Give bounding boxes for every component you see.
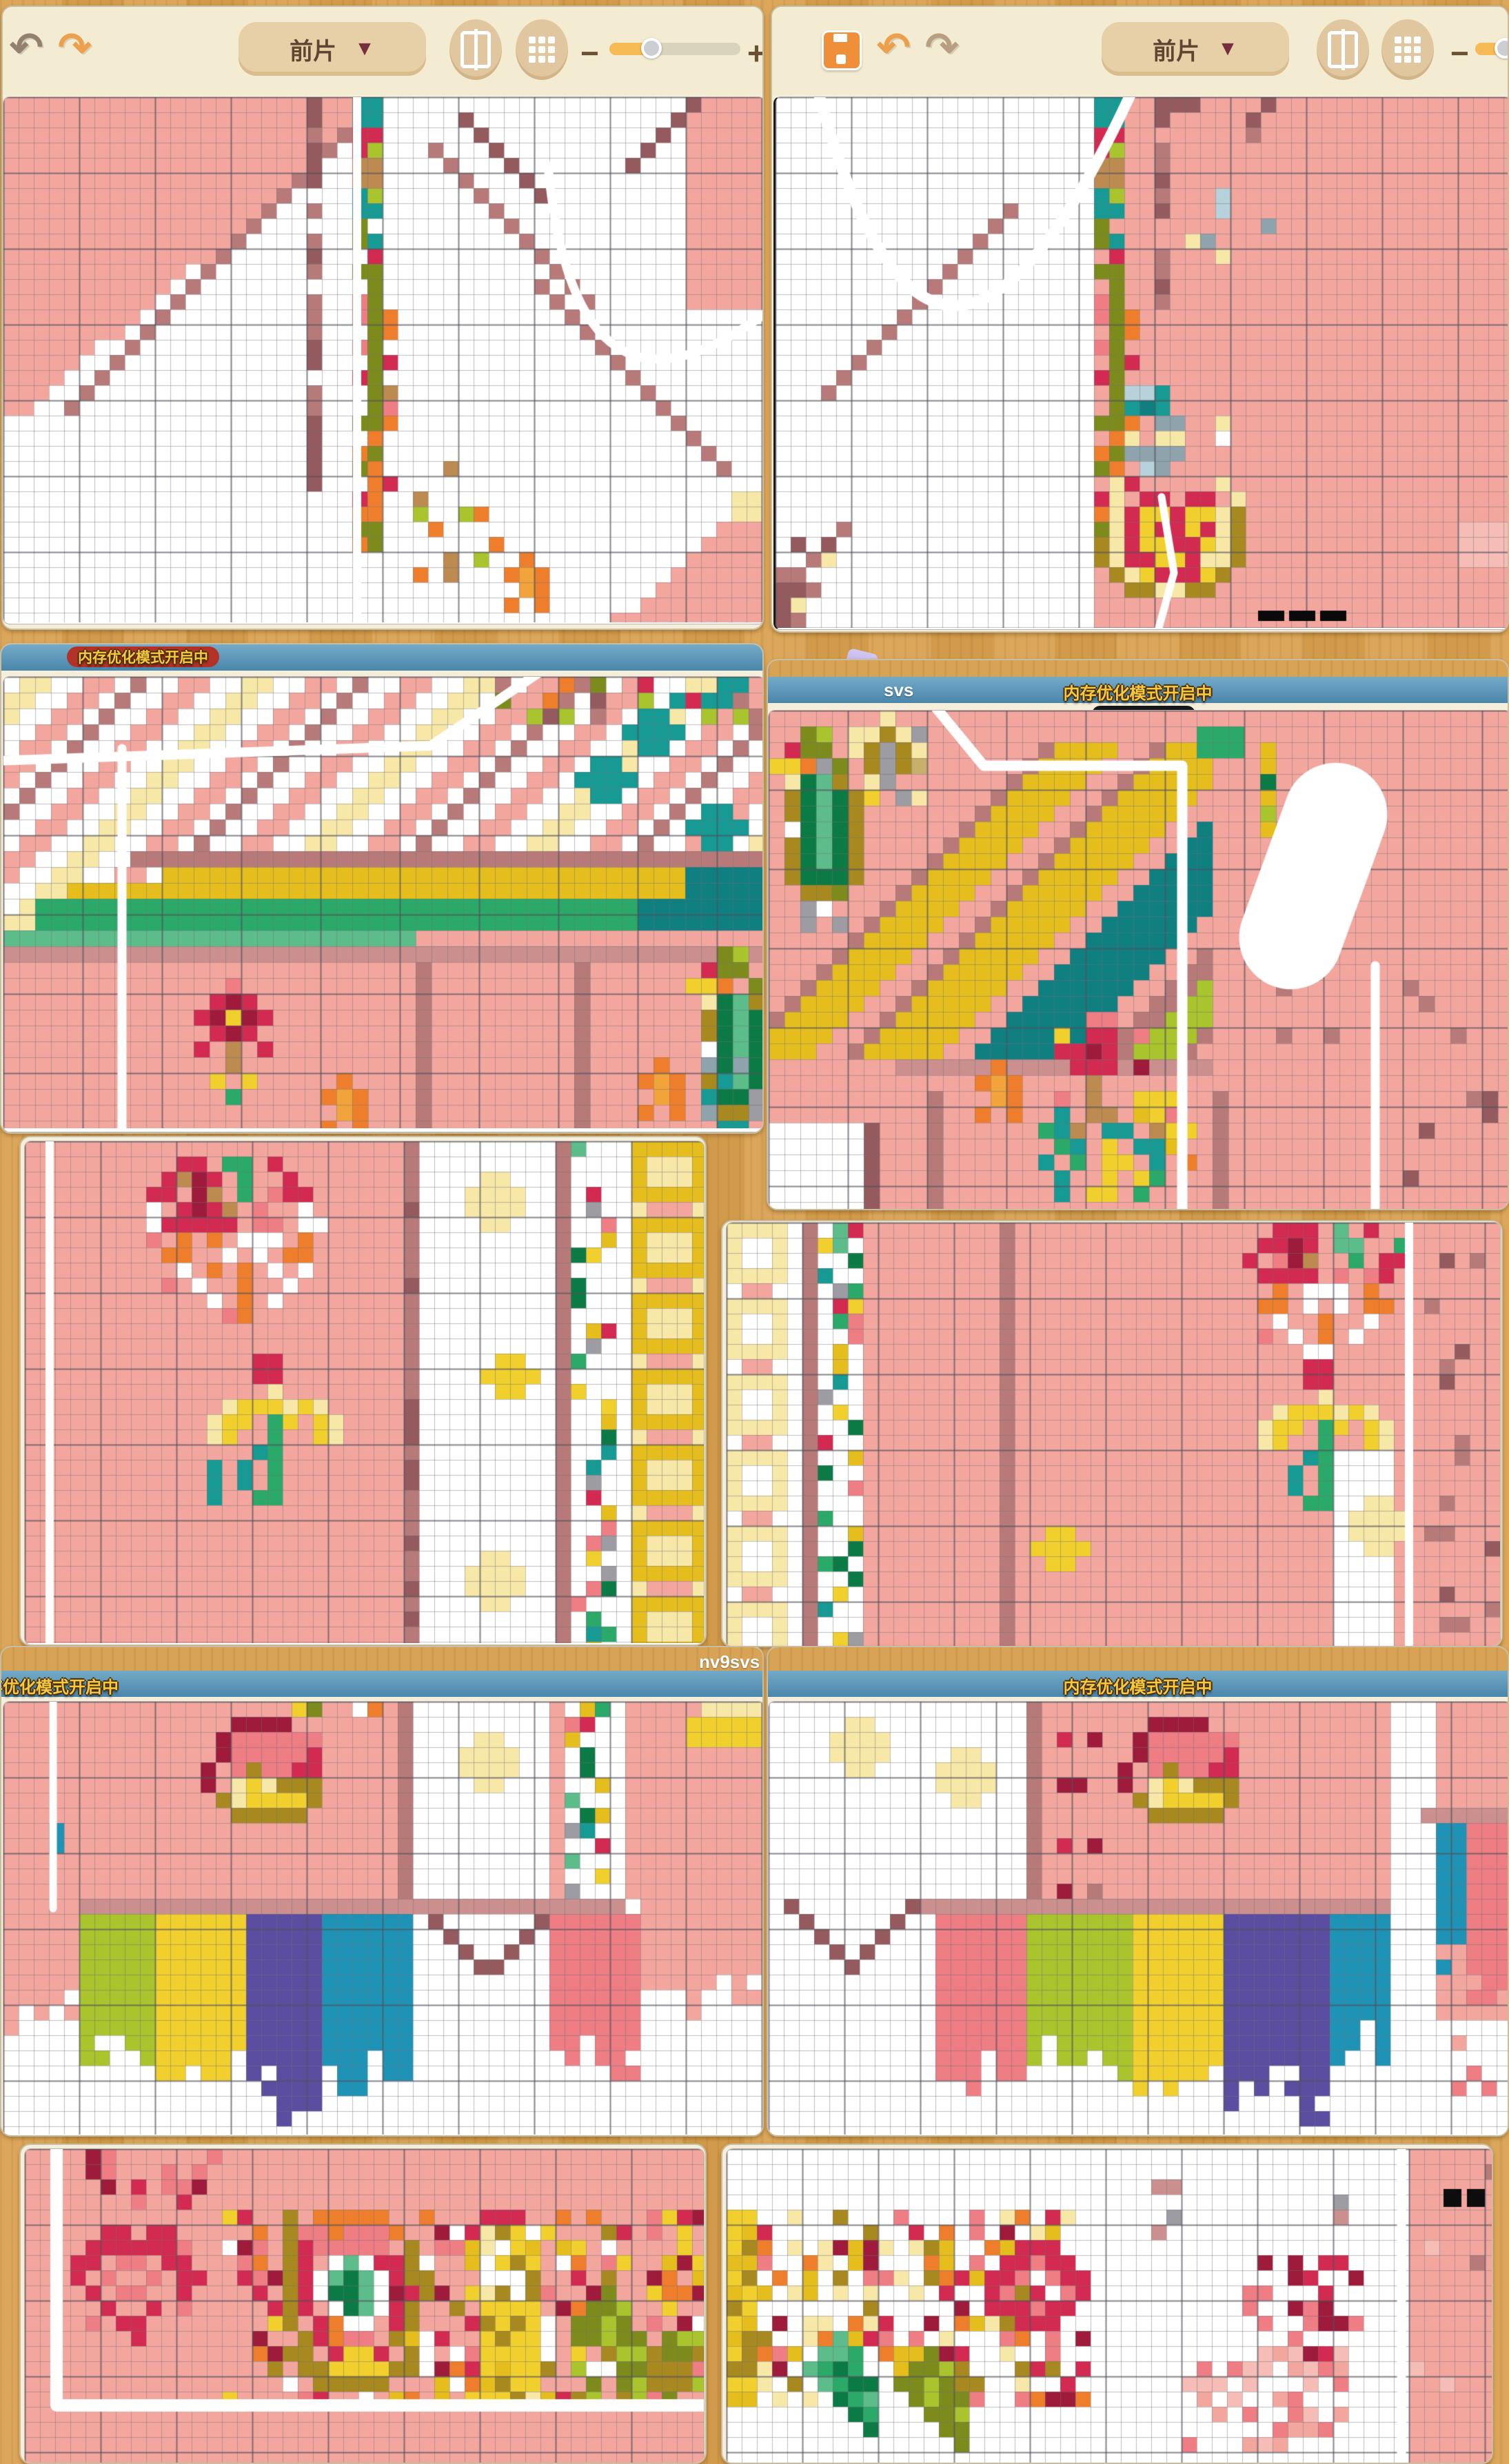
zoom-out-button[interactable]: −	[580, 34, 599, 72]
symmetry-icon	[460, 31, 491, 68]
piece-selector[interactable]: 前片 ▼	[239, 22, 426, 76]
pattern-grid-canvas[interactable]	[25, 2149, 704, 2463]
chevron-down-icon: ▼	[354, 37, 375, 61]
chart-grid-frame	[3, 1701, 764, 2137]
pattern-editor-window-row5-left	[19, 2144, 707, 2464]
zoom-slider-thumb[interactable]	[1495, 38, 1509, 59]
pattern-grid-canvas[interactable]	[769, 1702, 1509, 2135]
pattern-editor-window-row4-left: 内存优化模式开启中	[0, 1646, 764, 2137]
redo-icon[interactable]: ↷	[58, 28, 92, 68]
chart-grid-frame	[768, 1701, 1509, 2137]
watermark-text: nv9svs	[699, 1651, 760, 1673]
status-bar: svs 内存优化模式开启中	[768, 677, 1508, 703]
symmetry-button[interactable]	[449, 19, 502, 80]
status-bar: 内存优化模式开启中	[768, 1671, 1508, 1697]
status-bar: 内存优化模式开启中	[1, 644, 762, 671]
pattern-editor-window-mid-left: 内存优化模式开启中	[0, 643, 764, 1134]
grid-toggle-button[interactable]	[1381, 19, 1434, 80]
piece-selector-label: 前片	[1153, 32, 1199, 66]
symmetry-icon	[1328, 31, 1358, 68]
toolbar: ↶ ↷ 前片 ▼ −	[772, 7, 1508, 95]
zoom-in-button[interactable]: +	[747, 34, 764, 72]
wood-strip	[1, 1647, 762, 1671]
pattern-grid-canvas[interactable]	[3, 1702, 764, 2135]
chart-grid-frame	[726, 1222, 1501, 1647]
grid-toggle-button[interactable]	[516, 19, 568, 80]
save-icon	[833, 34, 847, 42]
pattern-editor-window-row3-left	[19, 1136, 707, 1646]
pattern-editor-window-row3-right	[721, 1220, 1503, 1647]
zoom-slider[interactable]	[1475, 43, 1509, 55]
memory-mode-text: 内存优化模式开启中	[78, 646, 208, 667]
zoom-out-button[interactable]: −	[1450, 34, 1469, 72]
pattern-grid-canvas[interactable]	[769, 711, 1509, 1210]
redo-icon[interactable]: ↷	[925, 28, 959, 68]
save-button[interactable]	[822, 30, 862, 70]
chart-grid-frame	[24, 2148, 705, 2464]
memory-mode-text: 内存优化模式开启中	[0, 1673, 119, 1698]
chart-grid-frame	[24, 1141, 705, 1645]
chart-grid-frame	[3, 96, 764, 624]
zoom-slider[interactable]	[609, 43, 740, 55]
piece-selector[interactable]: 前片 ▼	[1102, 22, 1289, 76]
memory-mode-badge: 内存优化模式开启中	[67, 646, 219, 667]
pattern-editor-window-top-left: ↶ ↷ 前片 ▼ − +	[1, 6, 764, 630]
pattern-grid-canvas[interactable]	[3, 677, 764, 1128]
pattern-editor-window-mid-right: svs 内存优化模式开启中	[767, 659, 1509, 1210]
chevron-down-icon: ▼	[1217, 37, 1238, 61]
pattern-editor-window-row4-right: 内存优化模式开启中	[767, 1646, 1509, 2137]
chart-grid-frame	[768, 710, 1509, 1210]
grid-icon	[1395, 37, 1421, 63]
grid-icon	[529, 37, 555, 63]
chart-grid-frame	[726, 2148, 1493, 2464]
pattern-editor-window-row5-right	[721, 2144, 1493, 2464]
symmetry-button[interactable]	[1317, 19, 1369, 80]
pattern-grid-canvas[interactable]	[25, 1141, 704, 1643]
memory-mode-text: 内存优化模式开启中	[768, 1673, 1508, 1698]
wood-strip	[768, 660, 1508, 677]
piece-selector-label: 前片	[290, 32, 336, 66]
pattern-grid-canvas[interactable]	[776, 97, 1509, 628]
chart-grid-frame	[3, 676, 764, 1132]
status-bar: 内存优化模式开启中	[1, 1671, 762, 1697]
memory-mode-text: 内存优化模式开启中	[768, 680, 1508, 704]
toolbar: ↶ ↷ 前片 ▼ − +	[3, 7, 762, 95]
undo-icon[interactable]: ↶	[877, 28, 911, 68]
wood-strip	[768, 1647, 1508, 1671]
zoom-slider-thumb[interactable]	[641, 38, 662, 59]
pattern-grid-canvas[interactable]	[3, 97, 764, 622]
undo-icon[interactable]: ↶	[10, 28, 43, 68]
save-icon-dot	[836, 54, 846, 64]
pattern-grid-canvas[interactable]	[727, 2149, 1493, 2463]
pattern-grid-canvas[interactable]	[727, 1223, 1500, 1647]
pattern-editor-window-top-right: ↶ ↷ 前片 ▼ −	[771, 6, 1509, 633]
chart-grid-frame	[773, 96, 1509, 630]
